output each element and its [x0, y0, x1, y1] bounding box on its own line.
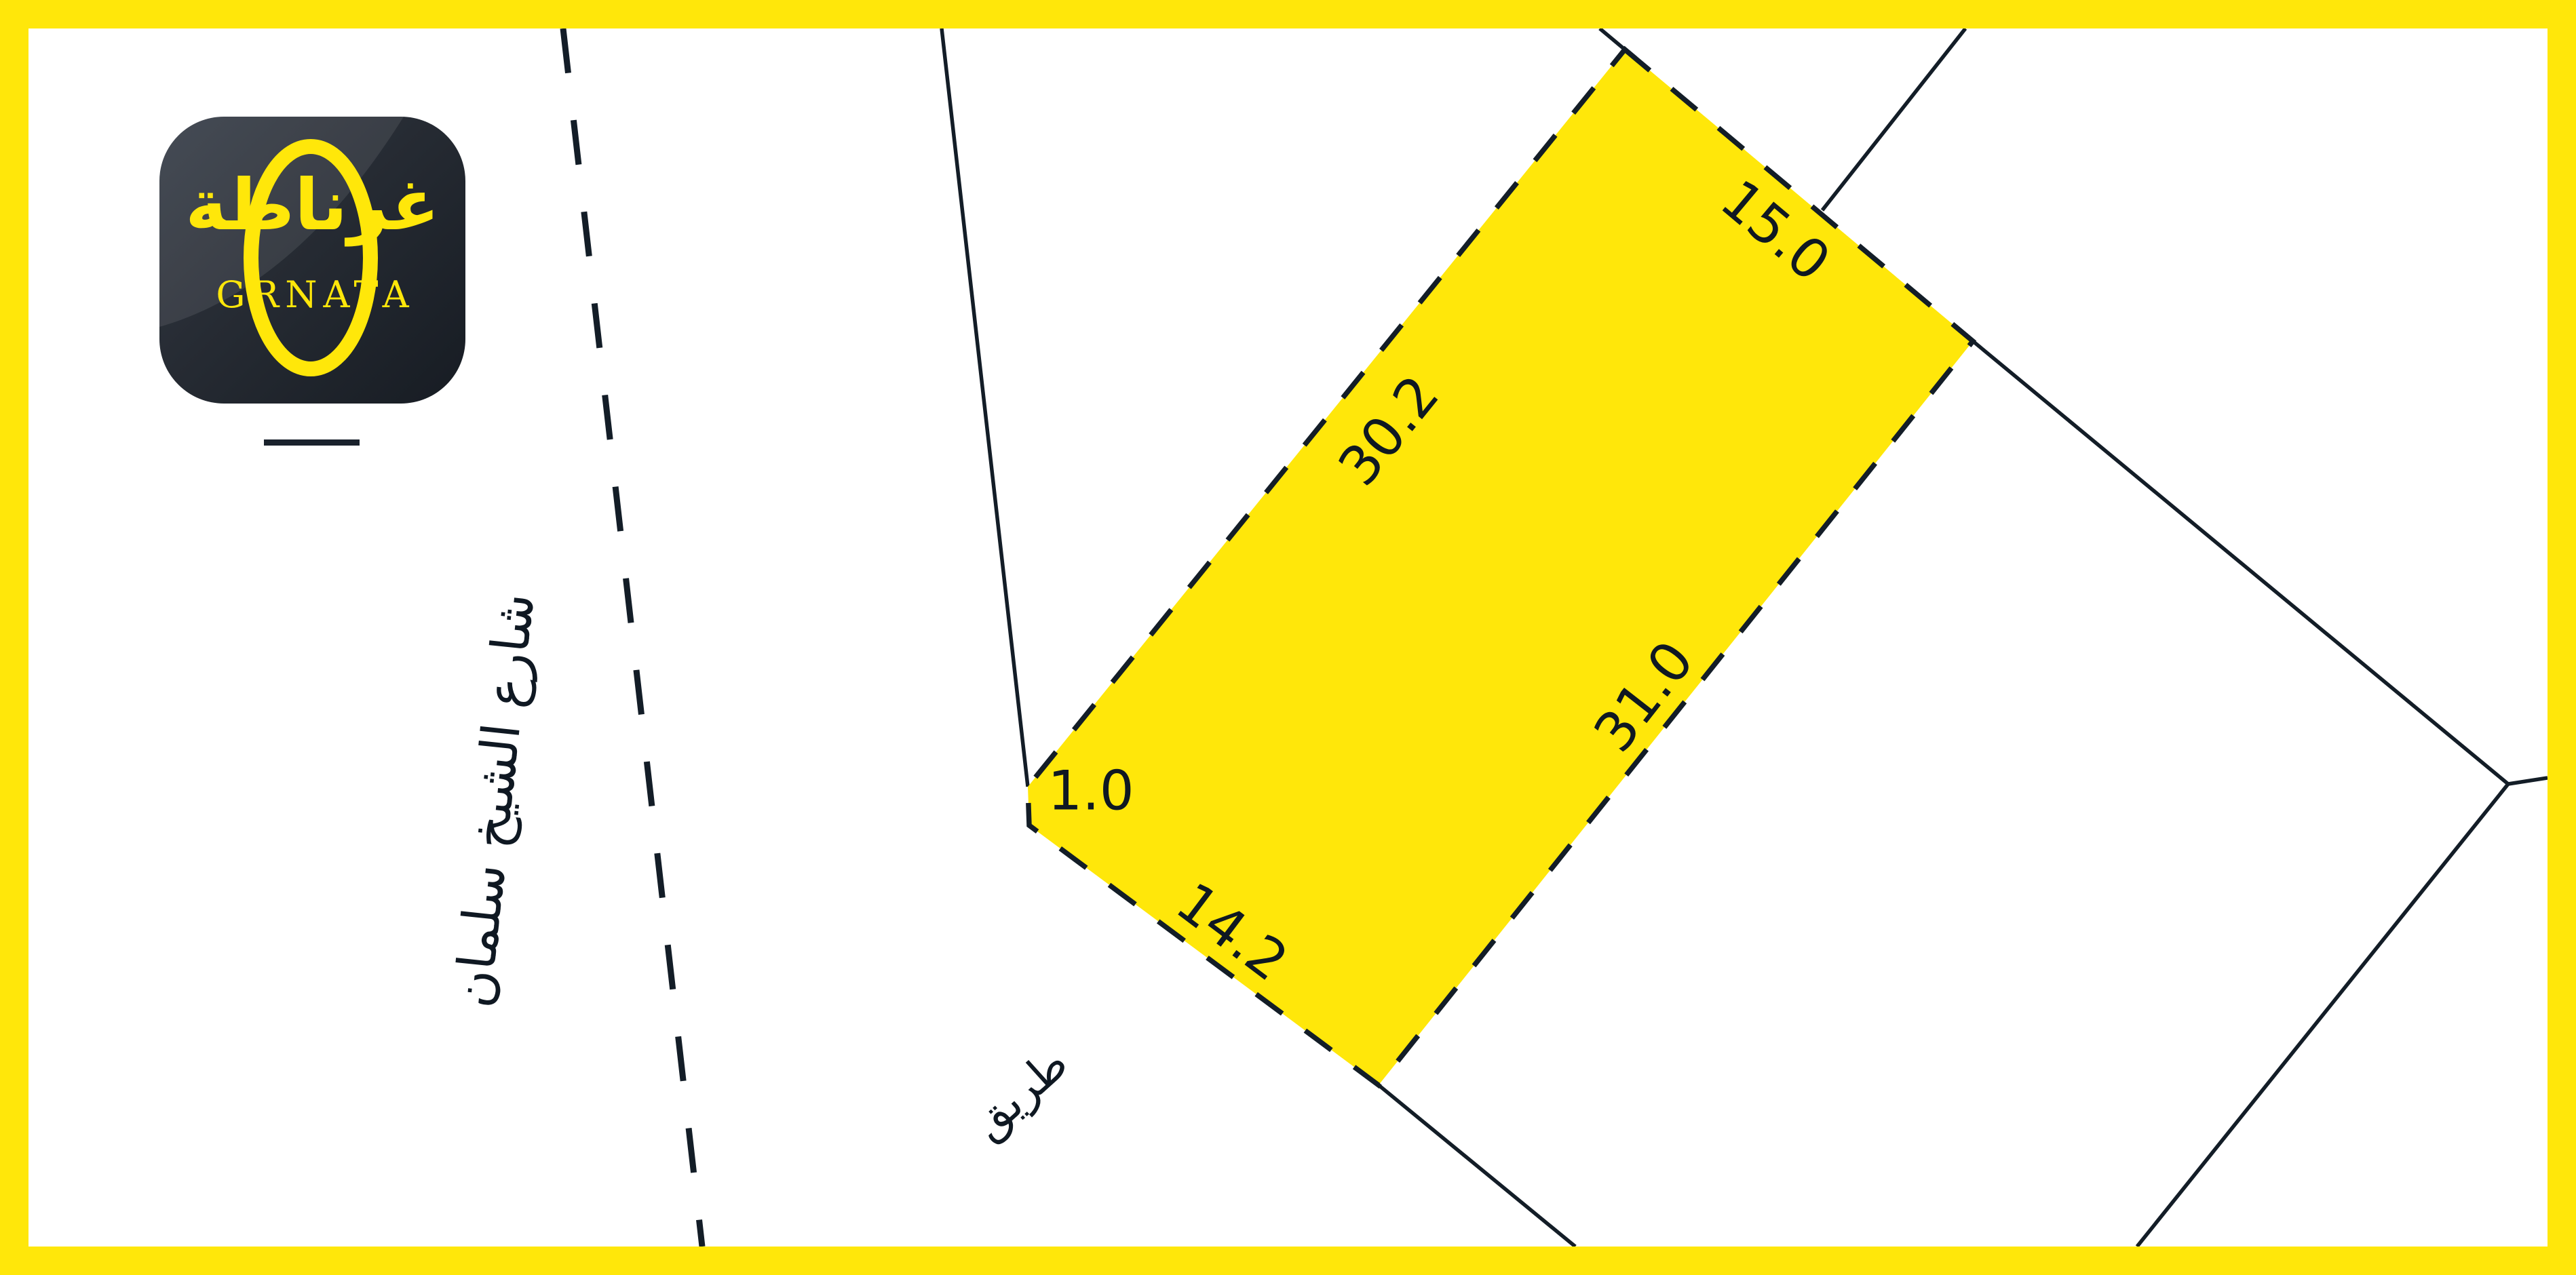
boundary-line-top-right [1822, 28, 1965, 210]
logo-underline [264, 439, 360, 446]
logo-latin-wordmark: GRNATA [159, 277, 465, 313]
highlighted-plot [1028, 50, 1973, 1085]
boundary-line-southeast [2137, 784, 2508, 1247]
boundary-line-east-stub [2508, 778, 2548, 784]
boundary-line-left [942, 28, 1028, 787]
dimension-chamfer-edge: 1.0 [1047, 760, 1134, 823]
boundary-line-right [1973, 341, 2508, 784]
street-dashed-line [563, 28, 702, 1247]
cadastral-plot-map: غرناطة GRNATA شارع الشيخ سلمان طريق 15.0… [0, 0, 2576, 1275]
boundary-line-top-connector [1600, 28, 1625, 50]
logo-arabic-wordmark: غرناطة [159, 152, 465, 258]
boundary-line-bottom [1379, 1085, 1575, 1247]
grnata-logo: غرناطة GRNATA [159, 117, 465, 404]
